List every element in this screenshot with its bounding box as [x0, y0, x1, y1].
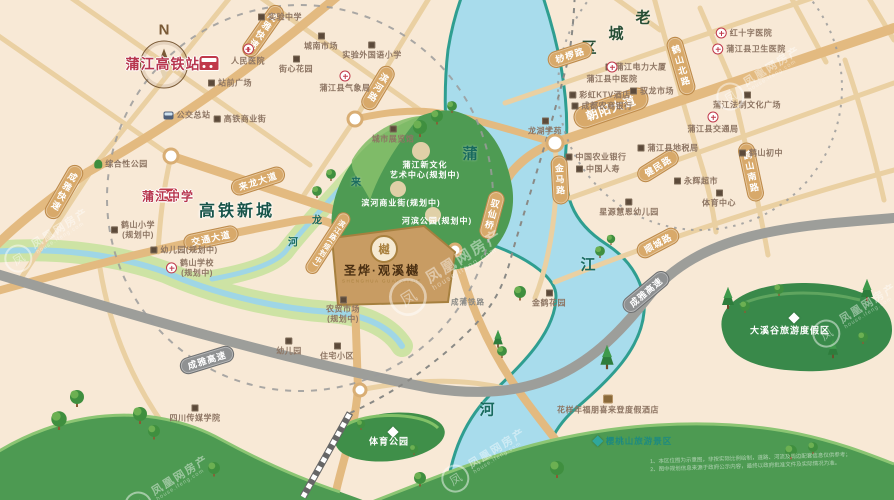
bank-icon: [572, 103, 579, 110]
map-poi: 彩虹KTV酒店: [569, 90, 631, 101]
hsr-station-label: 蒲江高铁站: [126, 54, 201, 74]
lailong-char: 龙: [312, 212, 322, 227]
map-poi: 四川传媒学院: [170, 405, 221, 424]
cherry-hill-label: 樱桃山旅游景区: [594, 435, 673, 447]
old-town-char: 城: [608, 23, 623, 44]
riverside-park-label: 河滨公园(规划中): [402, 216, 472, 227]
railway-label: 成蒲铁路: [451, 297, 485, 308]
building-icon: [576, 166, 583, 173]
diamond-icon: [592, 435, 603, 446]
culture-center-label: 蒲江新文化艺术中心(规划中): [390, 161, 460, 182]
map-poi: 实验外国语小学: [342, 42, 402, 61]
building-icon: [369, 42, 376, 49]
map-poi: 蒲江县地税局: [638, 143, 699, 154]
hospital-icon: [243, 44, 254, 55]
building-icon: [293, 56, 300, 63]
map-poi: 蒲江县中医院: [587, 62, 638, 85]
location-map: N 蒲江高铁站 蒲江中学 高铁新城 老 城 区 蒲 江 河 来 龙 河 樾 圣烨…: [0, 0, 894, 500]
building-icon: [716, 190, 723, 197]
building-icon: [390, 126, 397, 133]
bus-icon: [164, 111, 174, 119]
map-poi: 街心花园: [279, 56, 313, 75]
map-poi: 公交总站: [164, 110, 211, 121]
building-icon: [674, 178, 681, 185]
map-poi: 成都农商银行: [572, 101, 633, 112]
building-icon: [208, 80, 215, 87]
hotel-icon: [603, 395, 613, 404]
map-poi: 蒲江县交通局: [688, 112, 739, 135]
school-icon: [166, 263, 177, 274]
map-poi: 人民医院: [231, 44, 265, 67]
bank-icon: [566, 154, 573, 161]
building-icon: [569, 92, 576, 99]
building-icon: [638, 145, 645, 152]
map-poi: 城市展览馆: [372, 126, 415, 145]
building-icon: [340, 296, 347, 303]
map-poi: 金鹤花园: [532, 290, 566, 309]
map-poi: 体育中心: [702, 190, 736, 209]
map-poi: 红十字医院: [716, 28, 773, 39]
building-icon: [334, 343, 341, 350]
building-icon: [150, 247, 157, 254]
building-icon: [286, 338, 293, 345]
map-poi: 中国农业银行: [566, 152, 627, 163]
building-icon: [318, 33, 325, 40]
project-logo: 樾: [370, 235, 398, 263]
lailong-char: 来: [351, 174, 361, 189]
train-station-icon: [199, 55, 220, 71]
map-poi: 农贸市场(规划中): [326, 296, 360, 323]
building-icon: [258, 14, 265, 21]
pujiang-school-label: 蒲江中学: [142, 188, 194, 205]
hospital-icon: [716, 28, 727, 39]
old-town-char: 老: [635, 7, 650, 28]
river-char-jiang: 江: [580, 254, 595, 275]
map-poi: 高铁商业街: [214, 114, 267, 125]
map-poi: 星源慧恩幼儿园: [599, 199, 659, 218]
map-poi: 中国人寿: [576, 164, 620, 175]
building-icon: [739, 150, 746, 157]
map-poi: 龙湖学苑: [528, 118, 562, 137]
map-poi: 花样年福朋喜来登度假酒店: [557, 395, 659, 416]
building-icon: [542, 118, 549, 125]
building-icon: [626, 199, 633, 206]
sports-park-label: 体育公园: [369, 435, 409, 448]
map-poi: 鹤山学校(规划中): [166, 258, 214, 277]
map-poi: 综合性公园: [94, 159, 148, 170]
map-poi: 幼儿园: [276, 338, 302, 357]
river-char-he: 河: [479, 399, 494, 420]
tree-icon: [94, 160, 102, 169]
hospital-icon: [607, 62, 618, 73]
gov-icon: [340, 71, 351, 82]
hospital-icon: [712, 44, 723, 55]
map-poi: 永辉超市: [674, 176, 718, 187]
lailong-char: 河: [288, 234, 298, 249]
gov-icon: [708, 112, 719, 123]
map-poi: 蒲江县气象局: [320, 71, 371, 94]
building-icon: [214, 116, 221, 123]
building-icon: [111, 227, 118, 234]
map-poi: 城南市场: [304, 33, 338, 52]
road-label: 金马路: [550, 155, 570, 205]
map-poi: 实验中学: [258, 12, 302, 23]
map-poi: 站前广场: [208, 78, 252, 89]
building-icon: [192, 405, 199, 412]
building-icon: [546, 290, 553, 297]
river-char-pu: 蒲: [462, 143, 477, 164]
map-poi: 鹤山小学(规划中): [111, 220, 155, 239]
compass-n-label: N: [159, 22, 170, 39]
map-poi: 驭龙市场: [630, 86, 674, 97]
riverside-street-label: 滨河商业街(规划中): [361, 198, 440, 209]
map-poi: 鹤山初中: [739, 148, 783, 159]
new-town-title: 高铁新城: [199, 197, 275, 221]
map-poi: 幼儿园(规划中): [150, 245, 217, 256]
map-poi: 住宅小区: [320, 343, 354, 362]
